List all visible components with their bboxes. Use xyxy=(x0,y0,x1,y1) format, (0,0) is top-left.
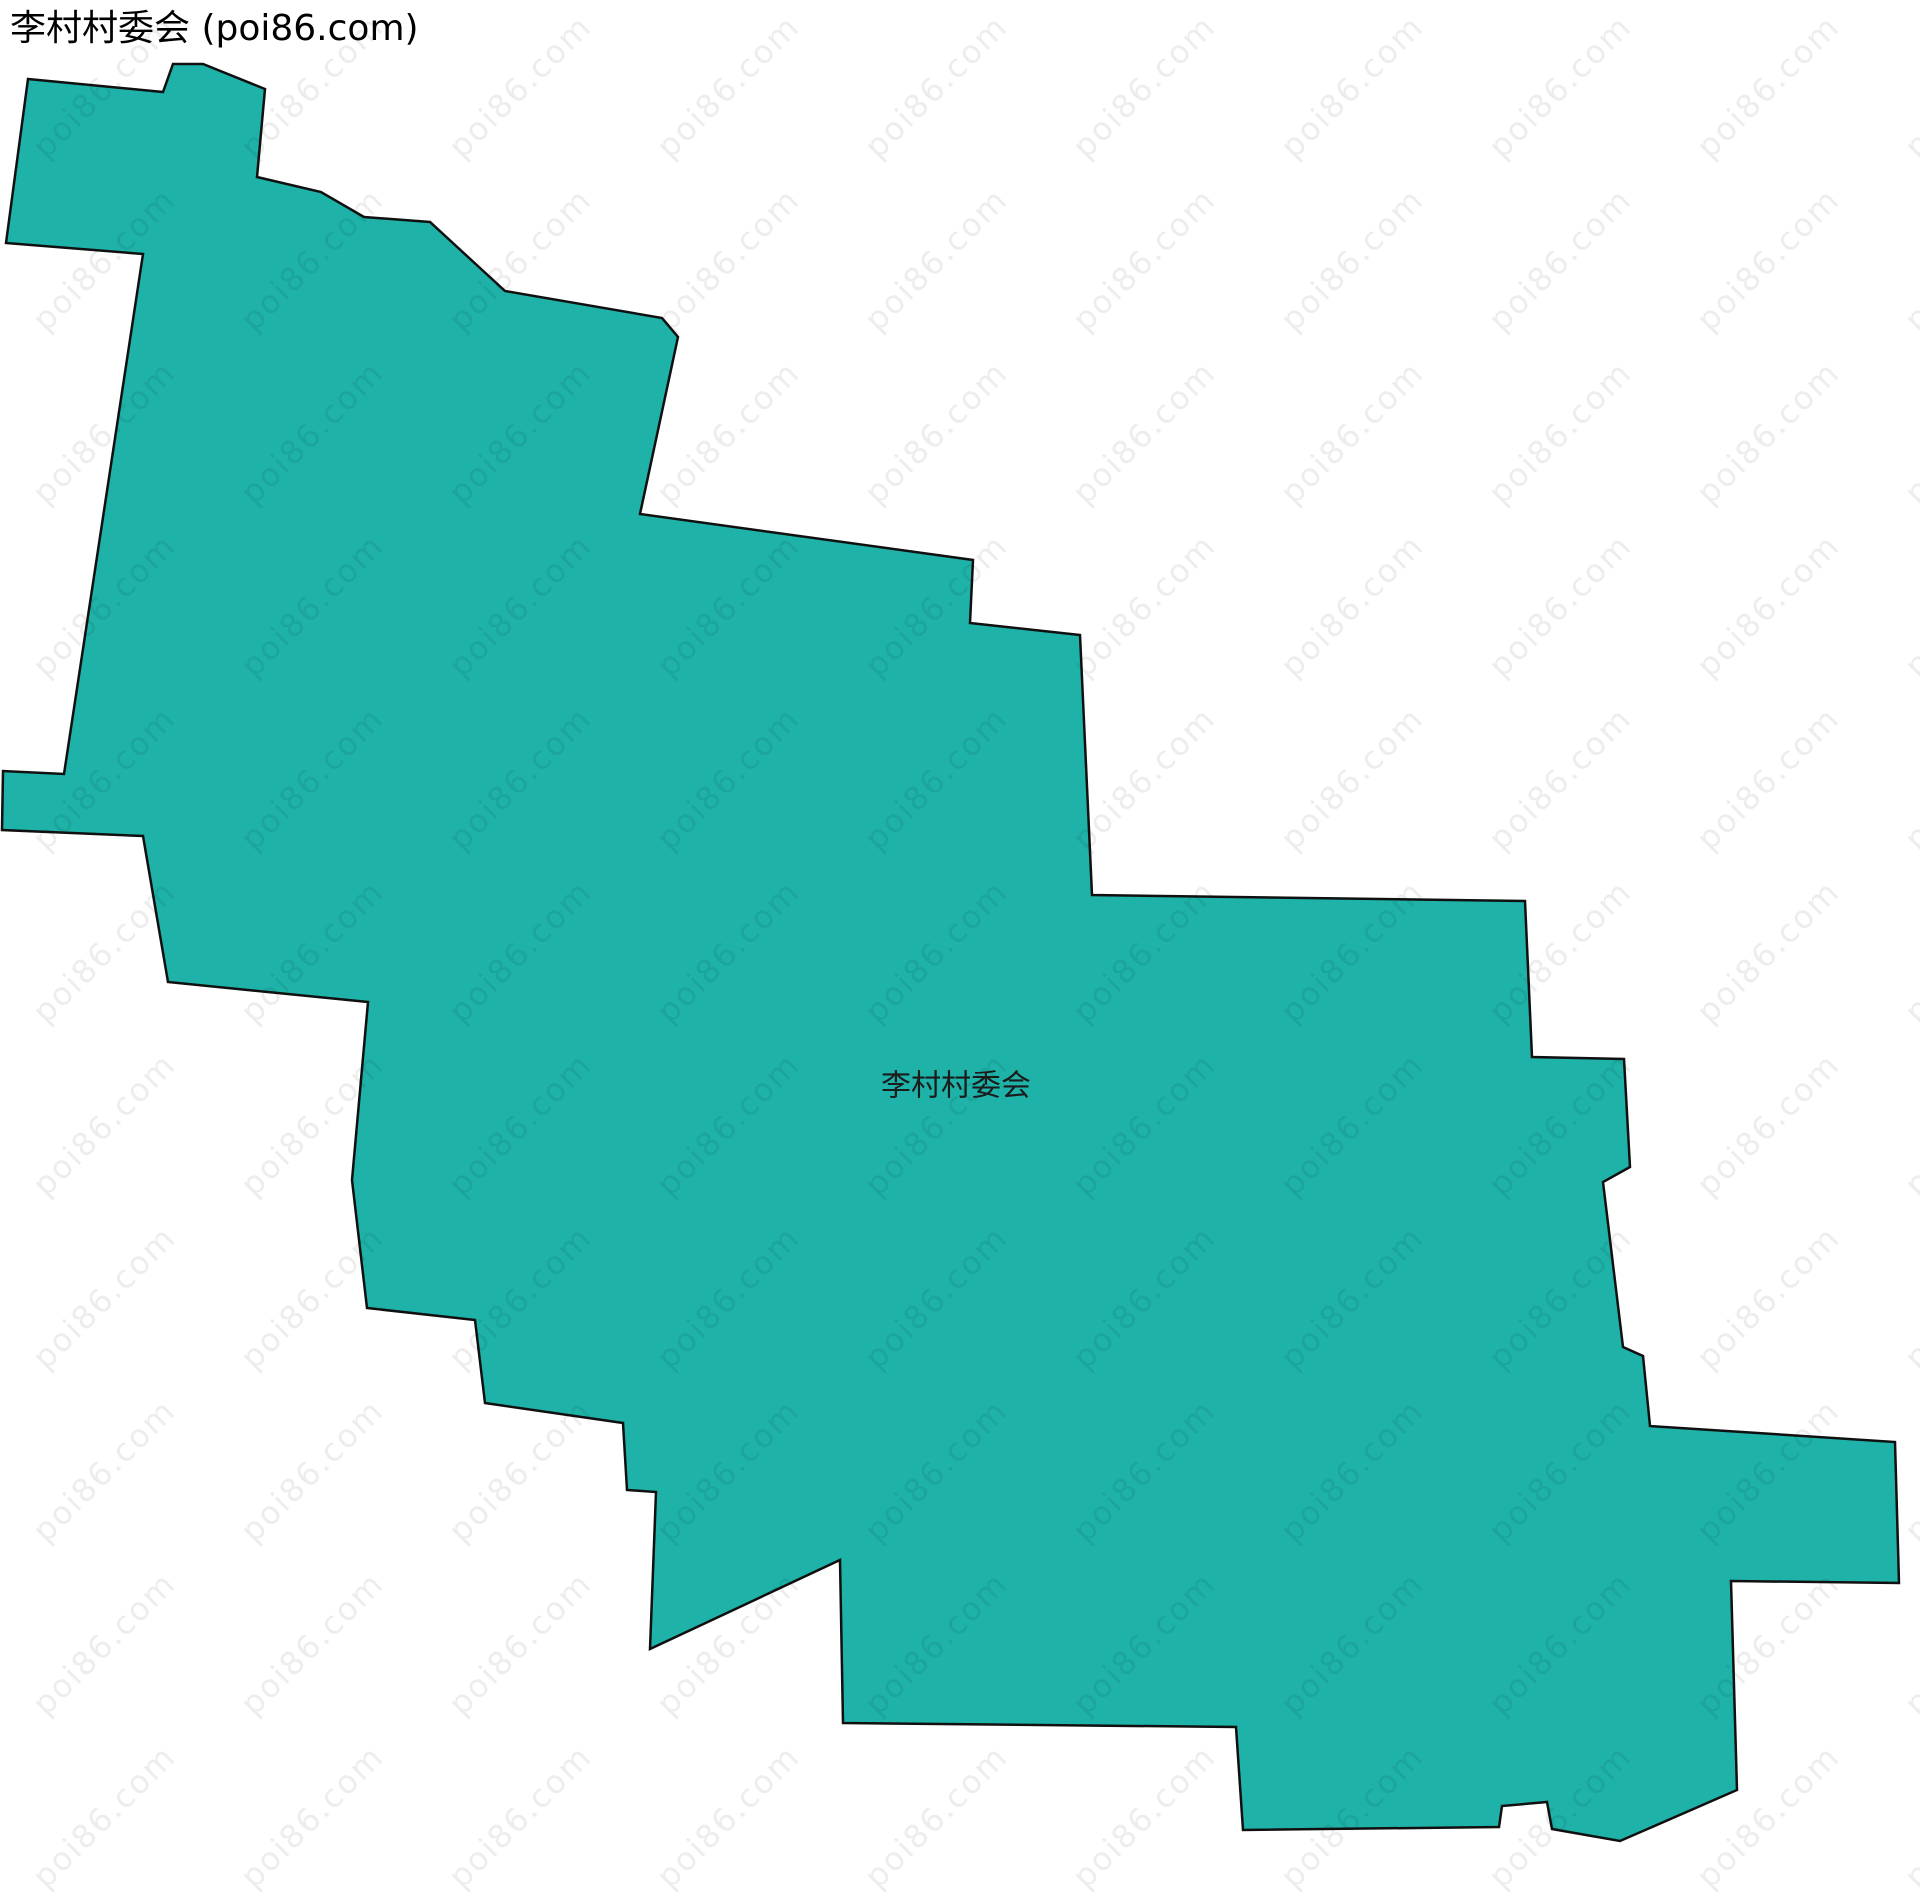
watermark-overlay xyxy=(0,0,1920,1898)
map-canvas: poi86.com 李村村委会 xyxy=(0,0,1920,1898)
page-title: 李村村委会 (poi86.com) xyxy=(10,8,419,49)
